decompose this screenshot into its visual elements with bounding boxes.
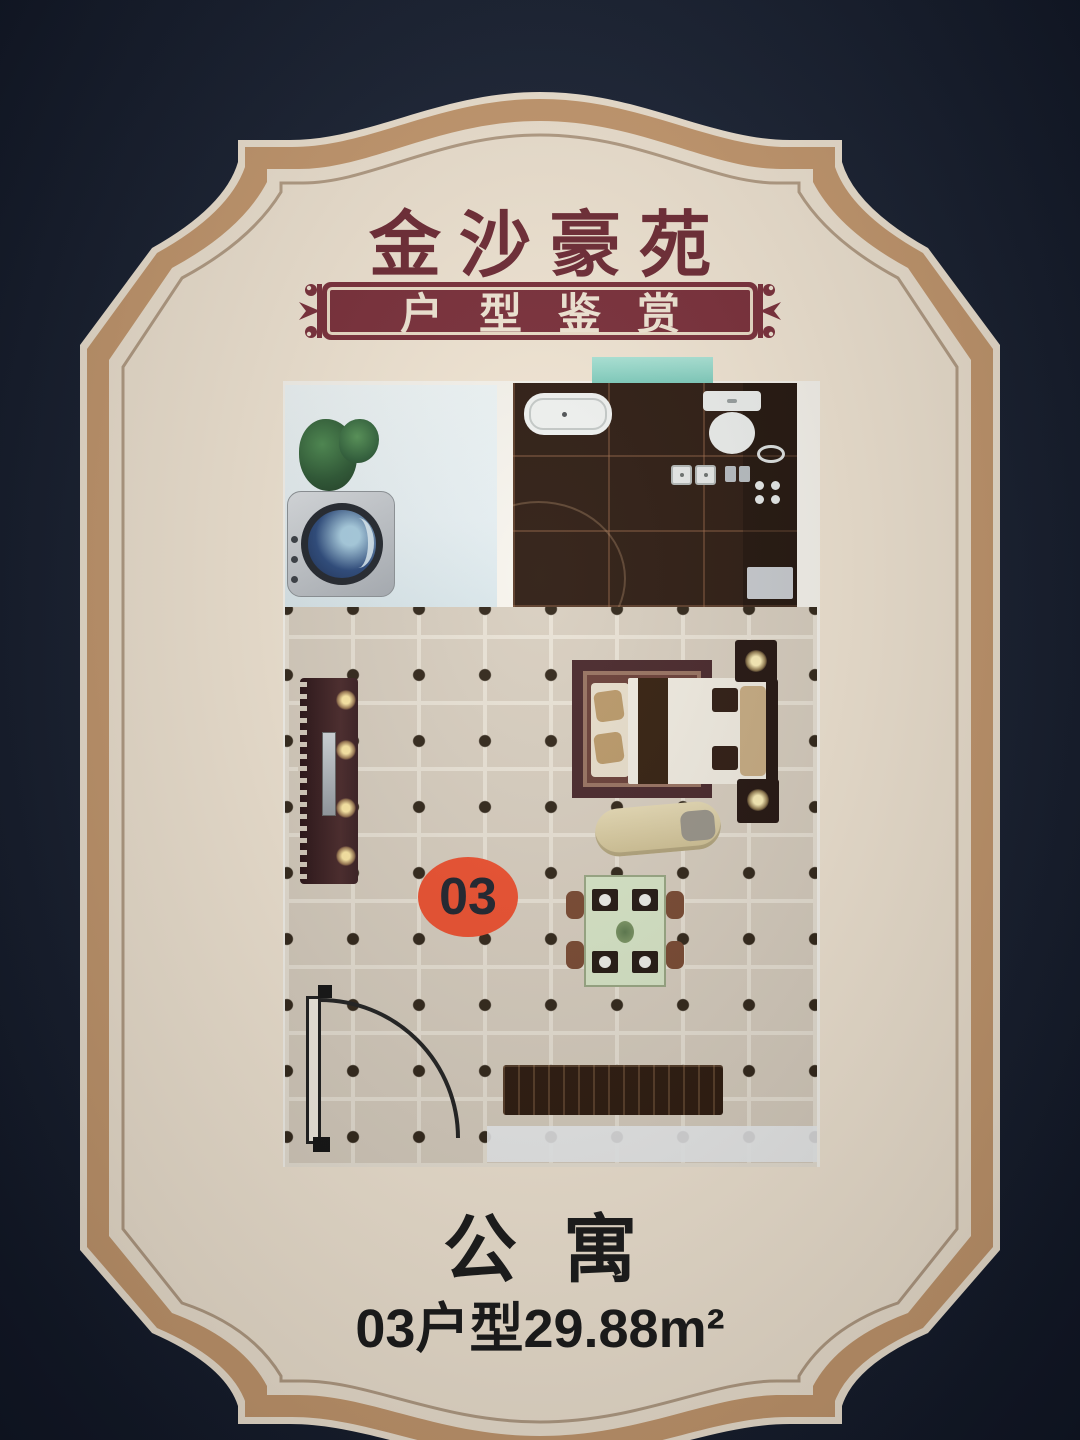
washer-drum xyxy=(301,503,383,585)
fridge-icon xyxy=(747,567,793,599)
pillow xyxy=(712,688,738,712)
door-swing-arc xyxy=(313,993,463,1143)
poster-photo: 金沙豪苑 户型鉴赏 xyxy=(0,0,1080,1440)
shower-arc xyxy=(513,501,626,607)
chaise-icon xyxy=(593,800,723,859)
lamp-icon xyxy=(747,789,769,811)
bathroom-accessories xyxy=(725,466,750,482)
bed-runner xyxy=(638,678,668,784)
stove-icon xyxy=(753,479,787,507)
window-icon xyxy=(592,357,713,386)
banner-scroll-left-icon xyxy=(292,282,322,340)
bathtub-icon xyxy=(524,393,612,435)
table-top xyxy=(584,875,666,987)
toilet-bowl xyxy=(709,412,755,454)
place-setting xyxy=(592,951,618,973)
washer-knob xyxy=(291,556,298,563)
floor-edge-strip xyxy=(487,1126,817,1162)
floorplan: 03 xyxy=(283,357,820,1170)
chaise-cushion xyxy=(680,809,716,842)
spotlight-icon xyxy=(336,690,356,710)
bed-icon xyxy=(628,678,778,784)
nightstand-icon xyxy=(737,779,779,823)
wall-stub xyxy=(313,1137,330,1152)
toilet-icon xyxy=(703,391,765,455)
room-bathroom-kitchen xyxy=(513,383,797,607)
type-label: 公寓 xyxy=(0,1190,1080,1297)
room-main-living-bedroom: 03 xyxy=(285,607,817,1167)
bathtub-drain xyxy=(562,412,567,417)
pillow xyxy=(712,746,738,770)
chair-icon xyxy=(666,941,684,969)
banner-label: 户型鉴赏 xyxy=(364,280,716,342)
plaque-content: 金沙豪苑 户型鉴赏 xyxy=(0,0,1080,1440)
toilet-tank xyxy=(703,391,761,411)
chair-icon xyxy=(566,941,584,969)
console-cabinet-icon xyxy=(503,1065,723,1115)
plant-icon xyxy=(339,419,379,463)
cushion xyxy=(593,731,625,765)
dining-table-icon xyxy=(566,875,684,987)
cushion xyxy=(593,689,625,723)
spotlight-icon xyxy=(336,798,356,818)
nightstand-icon xyxy=(735,640,777,682)
tv-icon xyxy=(322,732,336,816)
washer-knob xyxy=(291,536,298,543)
headboard xyxy=(766,678,778,784)
lamp-icon xyxy=(745,650,767,672)
banner-scroll-right-icon xyxy=(758,282,788,340)
poster-title: 金沙豪苑 xyxy=(0,186,1080,291)
bolster-pillow xyxy=(740,686,766,776)
chair-icon xyxy=(666,891,684,919)
banner: 户型鉴赏 xyxy=(292,282,788,340)
unit-badge-number: 03 xyxy=(439,867,497,927)
wall-stub xyxy=(318,985,332,998)
kitchen-sink-icon xyxy=(757,445,785,463)
bench-icon xyxy=(591,683,629,777)
banner-bar: 户型鉴赏 xyxy=(322,282,758,340)
washer-knob xyxy=(291,576,298,583)
place-setting xyxy=(592,889,618,911)
centerpiece xyxy=(616,921,634,943)
double-sink-icon xyxy=(671,465,716,485)
room-laundry-balcony xyxy=(285,385,497,607)
spotlight-icon xyxy=(336,740,356,760)
tv-cabinet-icon xyxy=(300,678,358,884)
place-setting xyxy=(632,889,658,911)
chair-icon xyxy=(566,891,584,919)
unit-badge: 03 xyxy=(418,857,518,937)
area-label: 03户型29.88m² xyxy=(0,1284,1080,1363)
washing-machine-icon xyxy=(287,491,395,597)
spotlight-icon xyxy=(336,846,356,866)
place-setting xyxy=(632,951,658,973)
